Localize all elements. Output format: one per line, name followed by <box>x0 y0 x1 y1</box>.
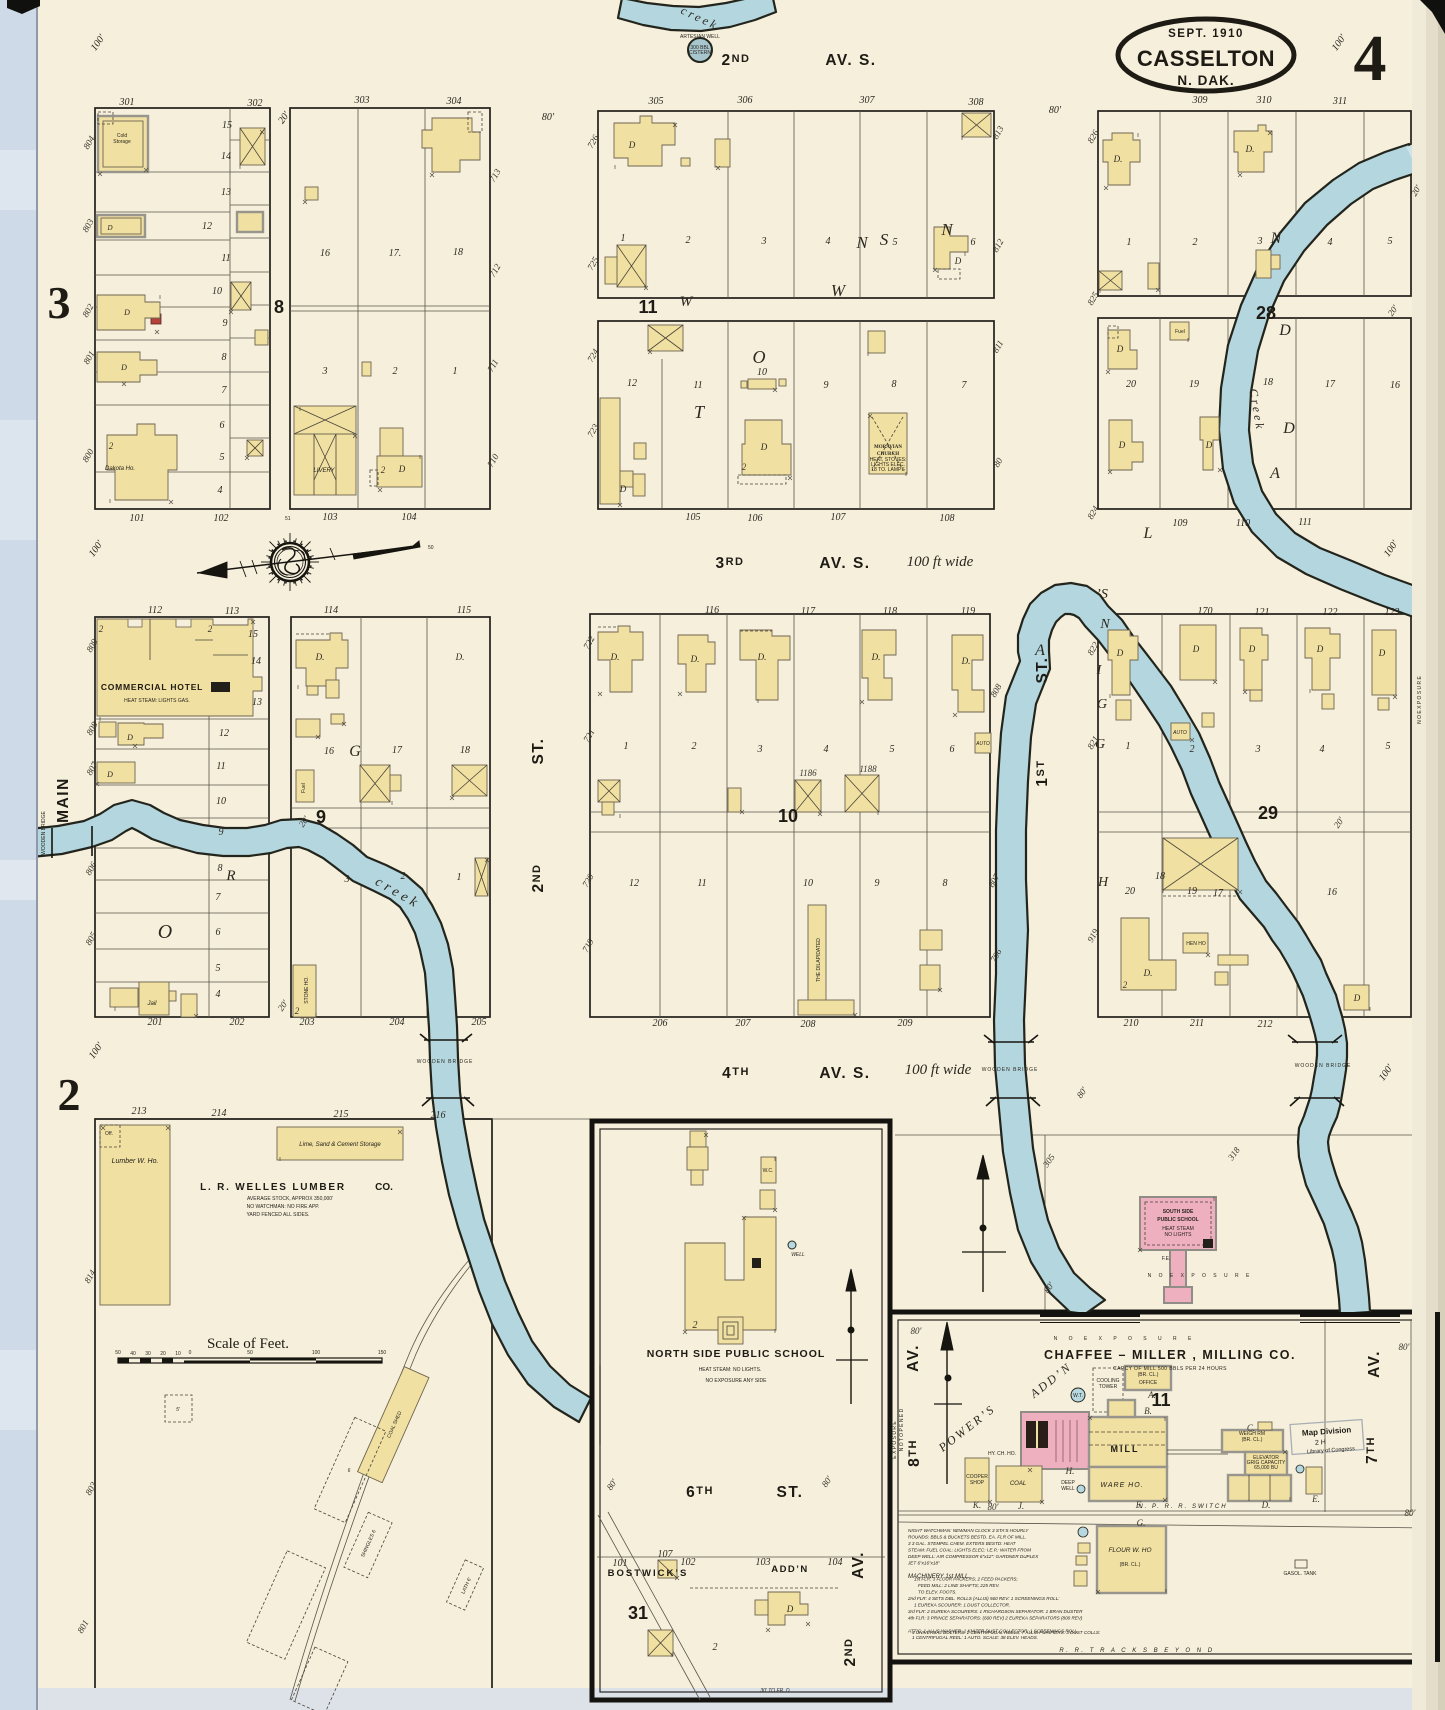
svg-text:2: 2 <box>393 366 398 377</box>
svg-text:16: 16 <box>324 746 334 757</box>
svg-text:102: 102 <box>681 1557 696 1568</box>
svg-text:111: 111 <box>1298 517 1312 528</box>
svg-text:80′: 80′ <box>1049 105 1062 116</box>
svg-text:O: O <box>753 347 766 367</box>
svg-text:310: 310 <box>1256 95 1272 106</box>
svg-text:D: D <box>1116 344 1124 354</box>
svg-text:18: 18 <box>453 247 463 258</box>
svg-text:Storage: Storage <box>113 139 131 145</box>
svg-text:10: 10 <box>175 1351 181 1357</box>
svg-text:A: A <box>1269 465 1280 482</box>
svg-text:6: 6 <box>950 744 955 755</box>
svg-text:E.: E. <box>1311 1494 1320 1504</box>
svg-text:Lime, Sand & Cement Storage: Lime, Sand & Cement Storage <box>299 1142 381 1148</box>
svg-text:103: 103 <box>323 512 338 523</box>
svg-text:N: N <box>1270 230 1283 247</box>
svg-text:D: D <box>398 464 406 474</box>
svg-text:29: 29 <box>1258 803 1278 823</box>
svg-text:50: 50 <box>115 1350 121 1356</box>
svg-text:D.: D. <box>690 654 700 664</box>
svg-text:311: 311 <box>1332 96 1347 107</box>
svg-text:(BR. CL.): (BR. CL.) <box>1120 1562 1141 1568</box>
svg-text:50: 50 <box>247 1350 253 1356</box>
svg-text:Dakota Ho.: Dakota Ho. <box>105 466 135 472</box>
svg-text:W: W <box>680 294 694 310</box>
svg-text:1: 1 <box>624 741 629 752</box>
svg-text:110: 110 <box>1236 518 1250 529</box>
svg-text:80′: 80′ <box>988 1502 1000 1512</box>
svg-text:3: 3 <box>761 236 767 247</box>
svg-text:309: 309 <box>1192 95 1208 106</box>
svg-text:D.: D. <box>455 652 465 662</box>
svg-text:G: G <box>1095 737 1105 752</box>
svg-text:D: D <box>628 140 636 150</box>
svg-text:115: 115 <box>457 605 471 616</box>
svg-text:51: 51 <box>285 516 291 522</box>
svg-text:D: D <box>954 256 962 266</box>
svg-text:9: 9 <box>824 380 829 391</box>
svg-text:4: 4 <box>1328 237 1333 248</box>
svg-text:12: 12 <box>202 221 212 232</box>
svg-text:18: 18 <box>1263 377 1273 388</box>
svg-text:D: D <box>1316 644 1324 654</box>
svg-text:301: 301 <box>119 97 135 108</box>
svg-text:MORAVIAN: MORAVIAN <box>874 445 902 450</box>
svg-text:D: D <box>1192 644 1200 654</box>
svg-text:5: 5 <box>216 963 221 974</box>
svg-text:212: 212 <box>1258 1019 1273 1030</box>
svg-text:18 TO. LAMPS: 18 TO. LAMPS <box>871 467 905 473</box>
svg-text:204: 204 <box>390 1017 405 1028</box>
svg-text:1: 1 <box>457 872 462 883</box>
svg-text:NIGHT WATCHMAN: NEWMAN CLOCK 3: NIGHT WATCHMAN: NEWMAN CLOCK 3 STA’S HOU… <box>908 1528 1029 1533</box>
svg-text:MAIN: MAIN <box>55 777 72 823</box>
svg-text:WOODEN BRIDGE: WOODEN BRIDGE <box>982 1067 1039 1073</box>
svg-text:11: 11 <box>221 253 230 264</box>
svg-text:CAPCY OF MILL 500 BBLS PER: CAPCY OF MILL 500 BBLS PER 24 HOURS <box>1113 1366 1227 1372</box>
svg-text:R: R <box>225 868 235 884</box>
svg-text:16: 16 <box>1327 887 1337 898</box>
svg-text:65,000 BU: 65,000 BU <box>1254 1465 1278 1471</box>
svg-text:AV.: AV. <box>905 1344 922 1372</box>
svg-text:305: 305 <box>648 96 664 107</box>
svg-text:D: D <box>1378 648 1386 658</box>
svg-text:104: 104 <box>828 1557 843 1568</box>
svg-text:214: 214 <box>212 1108 227 1119</box>
svg-text:HEAT STEAM: NO LIGHTS.: HEAT STEAM: NO LIGHTS. <box>699 1367 762 1373</box>
svg-text:AV. S.: AV. S. <box>825 52 876 69</box>
svg-text:AV.: AV. <box>850 1551 867 1579</box>
svg-text:WELL: WELL <box>1061 1486 1075 1492</box>
svg-text:THE DILAPIDATED: THE DILAPIDATED <box>816 938 822 982</box>
svg-text:D.: D. <box>1261 1500 1271 1510</box>
svg-text:N O E X P O S U R E: N O E X P O S U R E <box>1054 1336 1197 1342</box>
svg-text:4: 4 <box>1320 744 1325 755</box>
svg-text:14: 14 <box>251 656 261 667</box>
svg-text:6: 6 <box>971 237 976 248</box>
svg-text:19: 19 <box>1189 379 1199 390</box>
svg-text:W.C.: W.C. <box>763 1168 774 1174</box>
svg-text:15: 15 <box>248 629 258 640</box>
svg-text:80′: 80′ <box>542 112 555 123</box>
svg-text:O: O <box>158 921 172 943</box>
svg-text:100: 100 <box>312 1350 321 1356</box>
svg-text:G: G <box>349 743 361 760</box>
svg-text:2: 2 <box>58 1069 81 1120</box>
svg-text:10: 10 <box>216 796 226 807</box>
svg-text:D: D <box>786 1604 794 1614</box>
svg-text:N. DAK.: N. DAK. <box>1177 73 1234 88</box>
svg-text:18: 18 <box>460 745 470 756</box>
svg-text:G.: G. <box>1137 1518 1146 1528</box>
svg-text:N O E X P O S U R E: N O E X P O S U R E <box>1417 675 1423 723</box>
svg-text:2: 2 <box>1193 237 1198 248</box>
svg-text:ST.: ST. <box>1034 657 1051 684</box>
svg-text:12: 12 <box>219 728 229 739</box>
svg-text:D.: D. <box>315 652 325 662</box>
svg-text:13: 13 <box>221 187 231 198</box>
svg-text:4: 4 <box>218 485 223 496</box>
svg-text:D: D <box>1205 440 1213 450</box>
svg-text:AV. S.: AV. S. <box>819 555 870 572</box>
svg-text:207: 207 <box>736 1018 752 1029</box>
svg-text:TO ELEV. FOOTS.: TO ELEV. FOOTS. <box>918 1590 957 1595</box>
svg-text:306: 306 <box>737 95 753 106</box>
svg-text:123: 123 <box>1385 607 1400 618</box>
svg-text:D.: D. <box>871 652 881 662</box>
svg-text:E X P O S U R E: E X P O S U R E <box>892 1421 898 1459</box>
svg-text:2: 2 <box>693 1320 698 1331</box>
svg-text:2: 2 <box>713 1642 718 1653</box>
svg-text:9: 9 <box>219 827 224 838</box>
svg-text:8: 8 <box>218 863 223 874</box>
svg-text:A: A <box>1034 642 1045 659</box>
svg-text:202: 202 <box>230 1017 245 1028</box>
svg-text:GASOL. TANK: GASOL. TANK <box>1284 1571 1318 1577</box>
svg-text:D: D <box>760 442 768 452</box>
svg-text:D: D <box>1116 648 1124 658</box>
svg-text:CHAFFEE – MILLER , MILLING CO: CHAFFEE – MILLER , MILLING CO. <box>1044 1348 1296 1362</box>
svg-text:Jail: Jail <box>146 1001 157 1007</box>
svg-text:102: 102 <box>214 513 229 524</box>
svg-text:D: D <box>1282 420 1295 437</box>
svg-text:BOSTWICK’S: BOSTWICK’S <box>608 1568 689 1579</box>
svg-text:117: 117 <box>801 606 816 617</box>
svg-text:3: 3 <box>757 744 763 755</box>
svg-text:AV. S.: AV. S. <box>819 1065 870 1082</box>
svg-text:OFFICE: OFFICE <box>1139 1380 1158 1386</box>
svg-text:LIVERY: LIVERY <box>313 468 335 474</box>
svg-text:WARE HO.: WARE HO. <box>1100 1482 1143 1489</box>
svg-text:16: 16 <box>320 248 330 259</box>
svg-text:HEN HO: HEN HO <box>1186 941 1206 947</box>
svg-text:12: 12 <box>627 378 637 389</box>
svg-text:2: 2 <box>1123 980 1128 990</box>
svg-text:WELL: WELL <box>791 1252 805 1258</box>
svg-text:Off.: Off. <box>105 1131 113 1137</box>
svg-text:121: 121 <box>1255 607 1270 618</box>
svg-text:B.: B. <box>1144 1406 1152 1416</box>
svg-text:205: 205 <box>472 1017 487 1028</box>
svg-text:COMMERCIAL HOTEL: COMMERCIAL HOTEL <box>101 682 203 692</box>
svg-text:16: 16 <box>1390 380 1400 391</box>
svg-text:G: G <box>1097 697 1107 712</box>
svg-text:114: 114 <box>324 605 338 616</box>
svg-text:6: 6 <box>348 1468 351 1474</box>
svg-text:10: 10 <box>757 367 767 378</box>
svg-text:ARTESIAN WELL: ARTESIAN WELL <box>680 34 720 40</box>
svg-text:20: 20 <box>1125 886 1135 897</box>
svg-text:(BR. CL.): (BR. CL.) <box>1138 1372 1159 1378</box>
svg-text:2nd FLR: 4 SETS DBL. ROLLS (AL: 2nd FLR: 4 SETS DBL. ROLLS (ALLIS) 560 R… <box>907 1596 1060 1601</box>
svg-text:15: 15 <box>222 120 232 131</box>
svg-text:D: D <box>123 308 130 317</box>
svg-text:302: 302 <box>247 98 263 109</box>
svg-text:203: 203 <box>300 1017 315 1028</box>
svg-text:2: 2 <box>109 441 114 451</box>
svg-text:106: 106 <box>748 513 763 524</box>
svg-text:107: 107 <box>831 512 847 523</box>
svg-text:ATTIC: 1 ALLIS WASHER: 1 KNIZ: ATTIC: 1 ALLIS WASHER: 1 KNIZER DUST COL… <box>907 1629 1079 1634</box>
svg-text:ROUNDS: BBLS & BUCKETS BESTD.: ROUNDS: BBLS & BUCKETS BESTD. EA. FLR OF… <box>908 1535 1026 1540</box>
svg-text:D: D <box>126 733 133 742</box>
svg-text:17.: 17. <box>389 248 402 259</box>
svg-text:N O T O P E N E D: N O T O P E N E D <box>899 1408 905 1451</box>
svg-text:2: 2 <box>381 465 386 475</box>
svg-text:D: D <box>1248 644 1256 654</box>
svg-text:100 ft wide: 100 ft wide <box>907 554 974 570</box>
svg-text:112: 112 <box>148 605 162 616</box>
svg-text:9: 9 <box>875 878 880 889</box>
svg-text:1 EUREKA SCOURER: 1 DUST COL: 1 EUREKA SCOURER: 1 DUST COLLECTOR. <box>914 1603 1010 1608</box>
svg-text:1188: 1188 <box>859 764 877 774</box>
svg-text:CISTERN: CISTERN <box>689 50 711 56</box>
svg-text:113: 113 <box>225 606 239 617</box>
svg-text:5: 5 <box>890 744 895 755</box>
svg-text:N: N <box>940 220 954 239</box>
svg-text:101: 101 <box>130 513 145 524</box>
svg-text:N O E X P O S U R E: N O E X P O S U R E <box>1148 1273 1253 1279</box>
svg-text:308: 308 <box>968 97 984 108</box>
svg-text:3: 3 <box>48 277 71 328</box>
svg-text:1: 1 <box>621 233 626 244</box>
svg-text:10: 10 <box>778 806 798 826</box>
svg-text:8: 8 <box>892 379 897 390</box>
svg-text:3: 3 <box>1257 236 1263 247</box>
svg-text:N. P. R. R. SWITCH: N. P. R. R. SWITCH <box>1138 1504 1227 1510</box>
svg-text:D.: D. <box>1143 968 1153 978</box>
svg-text:2: 2 <box>1190 744 1195 755</box>
svg-text:8: 8 <box>943 878 948 889</box>
svg-text:N: N <box>855 233 869 252</box>
svg-text:3: 3 <box>322 366 328 377</box>
svg-text:11: 11 <box>697 878 706 889</box>
svg-text:WOODEN BRIDGE: WOODEN BRIDGE <box>1295 1063 1352 1069</box>
svg-text:19: 19 <box>1187 886 1197 897</box>
svg-text:NO EXPOSURE ANY SIDE: NO EXPOSURE ANY SIDE <box>705 1378 767 1384</box>
svg-text:2: 2 <box>686 235 691 246</box>
svg-text:S: S <box>880 230 889 249</box>
svg-text:HEAT STEAM: LIGHTS GAS.: HEAT STEAM: LIGHTS GAS. <box>124 698 190 704</box>
svg-text:D: D <box>619 484 627 494</box>
svg-text:14: 14 <box>221 151 231 162</box>
svg-text:ST.: ST. <box>530 738 547 765</box>
svg-text:104: 104 <box>402 512 417 523</box>
svg-text:MILL: MILL <box>1111 1444 1140 1454</box>
svg-text:H.: H. <box>1065 1466 1075 1476</box>
svg-text:170: 170 <box>1198 606 1213 617</box>
svg-text:K.: K. <box>972 1500 981 1510</box>
svg-text:L. R. WELLES LUMBER: L. R. WELLES LUMBER <box>200 1182 346 1193</box>
svg-text:303: 303 <box>354 95 370 106</box>
svg-text:215: 215 <box>334 1109 349 1120</box>
svg-text:1: 1 <box>453 366 458 377</box>
svg-text:DEEP WELL: AIR COMPRESSOR 6″x1: DEEP WELL: AIR COMPRESSOR 6″x12″: GARDNE… <box>908 1554 1039 1559</box>
svg-text:JET 6″x16″x18″: JET 6″x16″x18″ <box>907 1561 940 1566</box>
svg-text:FEED MILL: 2 LINE SHAFTS; 225: FEED MILL: 2 LINE SHAFTS; 225 REV. <box>918 1583 1000 1588</box>
svg-text:D.: D. <box>1113 154 1123 164</box>
svg-text:9: 9 <box>223 318 228 329</box>
svg-text:9: 9 <box>316 807 326 827</box>
svg-text:1186: 1186 <box>799 768 817 778</box>
svg-text:CASSELTON: CASSELTON <box>1137 46 1275 71</box>
svg-text:D.: D. <box>961 656 971 666</box>
svg-text:3 3 GAL. STEMPEL CHEM. EXTERS: 3 3 GAL. STEMPEL CHEM. EXTERS BESTD: HEA… <box>908 1541 1017 1546</box>
svg-text:4: 4 <box>826 236 831 247</box>
svg-text:(BR. CL.): (BR. CL.) <box>1242 1437 1263 1443</box>
svg-text:4th FLR: 3 PRINCE SEPARATORS: 4th FLR: 3 PRINCE SEPARATORS: (600 REV) … <box>908 1616 1083 1621</box>
svg-text:80′: 80′ <box>911 1326 923 1336</box>
svg-text:AUTO: AUTO <box>975 741 990 747</box>
svg-text:0: 0 <box>189 1350 192 1356</box>
svg-text:A.: A. <box>1147 1390 1156 1400</box>
svg-text:304: 304 <box>446 96 462 107</box>
svg-text:201: 201 <box>148 1017 163 1028</box>
svg-text:12: 12 <box>629 878 639 889</box>
svg-text:209: 209 <box>898 1018 913 1029</box>
svg-text:18: 18 <box>1155 871 1165 882</box>
svg-text:10: 10 <box>212 286 222 297</box>
svg-text:118: 118 <box>883 606 897 617</box>
svg-text:2: 2 <box>99 624 104 634</box>
svg-text:20: 20 <box>160 1351 166 1357</box>
svg-text:HY. CH. HO.: HY. CH. HO. <box>988 1451 1016 1457</box>
svg-text:SOUTH SIDE: SOUTH SIDE <box>1163 1209 1194 1215</box>
svg-text:D: D <box>1118 440 1126 450</box>
svg-text:D: D <box>106 770 113 779</box>
svg-text:80′: 80′ <box>1399 1342 1411 1352</box>
svg-text:5: 5 <box>893 237 898 248</box>
svg-text:100 ft wide: 100 ft wide <box>905 1062 972 1078</box>
svg-text:211: 211 <box>1190 1018 1204 1029</box>
svg-text:105: 105 <box>686 512 701 523</box>
svg-text:W: W <box>831 281 847 300</box>
svg-text:D: D <box>1278 322 1291 339</box>
svg-text:17: 17 <box>1213 888 1224 899</box>
svg-text:11: 11 <box>638 297 657 317</box>
svg-text:109: 109 <box>1173 518 1188 529</box>
svg-text:1: 1 <box>1126 741 1131 752</box>
svg-text:NO LIGHTS: NO LIGHTS <box>1165 1232 1193 1238</box>
svg-text:D.: D. <box>610 652 620 662</box>
svg-text:11: 11 <box>216 761 225 772</box>
svg-text:17: 17 <box>392 745 403 756</box>
svg-text:108: 108 <box>940 513 955 524</box>
svg-text:J.: J. <box>1018 1501 1024 1511</box>
svg-text:ADD’N: ADD’N <box>771 1564 809 1575</box>
svg-text:13: 13 <box>252 697 262 708</box>
svg-text:AV.: AV. <box>1366 1350 1383 1378</box>
svg-text:50: 50 <box>428 545 434 551</box>
svg-text:213: 213 <box>132 1106 147 1117</box>
svg-text:17: 17 <box>1325 379 1336 390</box>
svg-text:WOODEN BRIDGE: WOODEN BRIDGE <box>41 811 47 855</box>
svg-text:216: 216 <box>431 1110 446 1121</box>
svg-text:208: 208 <box>801 1019 816 1030</box>
svg-text:L: L <box>1143 525 1153 542</box>
svg-text:NO WATCHMAN: NO FIRE APP.: NO WATCHMAN: NO FIRE APP. <box>247 1204 320 1210</box>
svg-text:D: D <box>106 224 112 232</box>
svg-text:AUTO: AUTO <box>1172 730 1187 736</box>
svg-text:YARD FENCED ALL SIDES.: YARD FENCED ALL SIDES. <box>246 1212 309 1218</box>
svg-text:’S: ’S <box>1096 587 1108 602</box>
svg-text:8: 8 <box>222 352 227 363</box>
svg-text:TOWER: TOWER <box>1099 1384 1118 1390</box>
svg-text:D: D <box>1353 993 1361 1003</box>
svg-text:SHOP: SHOP <box>970 1480 985 1486</box>
svg-text:D.: D. <box>757 652 767 662</box>
svg-text:107: 107 <box>658 1549 674 1560</box>
svg-text:206: 206 <box>653 1018 668 1029</box>
svg-text:CO.: CO. <box>375 1182 393 1193</box>
svg-text:5: 5 <box>1386 741 1391 752</box>
svg-text:3rd FLR: 2 EUREKA SCOURERS: 1: 3rd FLR: 2 EUREKA SCOURERS: 1 RICHARDSON… <box>908 1609 1083 1614</box>
svg-text:2: 2 <box>401 871 406 882</box>
svg-text:4: 4 <box>824 744 829 755</box>
svg-text:ST.: ST. <box>777 1484 804 1501</box>
svg-text:STONE HO.: STONE HO. <box>304 976 310 1003</box>
svg-text:30′ TO FR. D: 30′ TO FR. D <box>760 1688 790 1694</box>
svg-text:COAL: COAL <box>1010 1481 1026 1487</box>
svg-text:150: 150 <box>378 1350 387 1356</box>
svg-text:4: 4 <box>1354 22 1387 95</box>
svg-text:11: 11 <box>693 380 702 391</box>
svg-text:2: 2 <box>208 624 213 634</box>
svg-text:3: 3 <box>344 874 350 885</box>
svg-text:28: 28 <box>1256 303 1276 323</box>
svg-text:2 H: 2 H <box>1315 1439 1326 1447</box>
svg-text:6: 6 <box>216 927 221 938</box>
svg-text:WOODEN BRIDGE: WOODEN BRIDGE <box>417 1059 474 1065</box>
svg-text:2: 2 <box>692 741 697 752</box>
svg-text:122: 122 <box>1323 607 1338 618</box>
svg-text:Fuel: Fuel <box>1175 329 1185 335</box>
svg-text:30: 30 <box>145 1351 151 1357</box>
svg-text:AVERAGE STOCK, APPROX 350,00: AVERAGE STOCK, APPROX 350,000′ <box>247 1196 333 1202</box>
svg-text:R. R. T R A C K S B: R. R. T R A C K S B E Y O N D <box>1059 1648 1214 1654</box>
svg-text:307: 307 <box>859 95 876 106</box>
svg-text:1: 1 <box>1127 237 1132 248</box>
svg-text:5: 5 <box>1388 236 1393 247</box>
svg-text:SEPT. 1910: SEPT. 1910 <box>1168 28 1244 40</box>
svg-text:H: H <box>1097 875 1109 890</box>
svg-text:W.T.: W.T. <box>1073 1393 1083 1399</box>
svg-text:210: 210 <box>1124 1018 1139 1029</box>
svg-text:103: 103 <box>756 1557 771 1568</box>
svg-text:116: 116 <box>705 605 719 616</box>
svg-text:N: N <box>1099 617 1110 632</box>
svg-text:NORTH SIDE PUBLIC SCHOOL: NORTH SIDE PUBLIC SCHOOL <box>647 1348 826 1360</box>
